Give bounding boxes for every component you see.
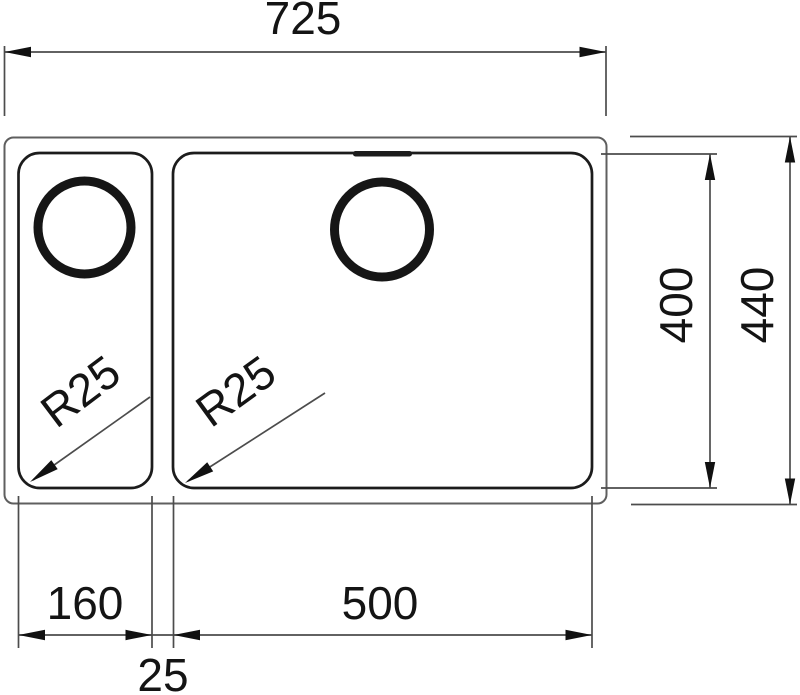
dim-bowl-depth-label: 400 [650, 267, 702, 344]
small-bowl-drain [38, 181, 131, 274]
sink-technical-drawing: 725 400 440 160 500 25 R25 [0, 0, 800, 695]
dim-large-bowl-width-label: 500 [342, 577, 419, 629]
dim-overall-depth-label: 440 [731, 267, 783, 344]
dim-bowl-gap-label: 25 [137, 649, 188, 695]
small-bowl-radius-label: R25 [31, 345, 130, 437]
sink-outer-rim-outline [5, 138, 607, 504]
arrow-right-icon [580, 47, 607, 57]
dim-bottom-widths: 160 500 25 [19, 496, 593, 695]
arrow-left-icon [19, 630, 46, 640]
large-bowl-radius-label: R25 [186, 345, 285, 437]
arrow-down-icon [705, 462, 715, 488]
large-bowl-drain [335, 182, 430, 277]
dim-bowl-depth: 400 [601, 154, 717, 488]
dim-overall-width-label: 725 [265, 0, 342, 44]
arrow-up-icon [705, 154, 715, 180]
arrow-left-icon [174, 630, 201, 640]
radius-callout-small-bowl: R25 [30, 345, 150, 482]
radius-callout-large-bowl: R25 [185, 345, 325, 483]
drawing-canvas: 725 400 440 160 500 25 R25 [0, 0, 800, 695]
arrow-down-left-icon [30, 460, 58, 482]
arrow-left-icon [5, 47, 32, 57]
arrow-up-icon [785, 137, 795, 163]
large-bowl-outline [173, 153, 592, 488]
dim-small-bowl-width-label: 160 [47, 577, 124, 629]
arrow-right-icon [566, 630, 593, 640]
arrow-down-icon [785, 479, 795, 505]
small-bowl-outline [19, 153, 153, 488]
overflow-mark [353, 151, 412, 157]
arrow-down-left-icon [185, 462, 213, 483]
arrow-right-icon [126, 630, 153, 640]
dim-overall-width: 725 [5, 0, 607, 116]
